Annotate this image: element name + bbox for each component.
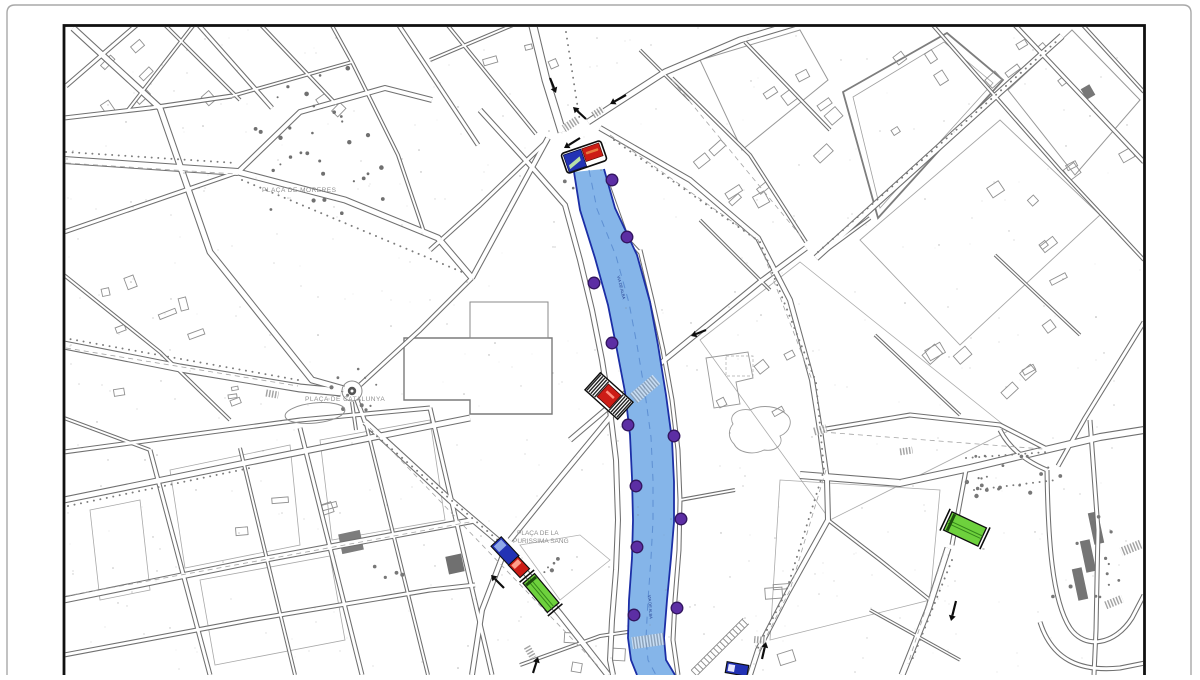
svg-text:PLAÇA DE MORERES: PLAÇA DE MORERES bbox=[262, 187, 337, 194]
svg-text:PURISSIMA SANG: PURISSIMA SANG bbox=[513, 538, 569, 545]
svg-text:PLAÇA DE CATALUNYA: PLAÇA DE CATALUNYA bbox=[305, 396, 385, 403]
svg-text:PLAÇA DE LA: PLAÇA DE LA bbox=[517, 530, 559, 537]
